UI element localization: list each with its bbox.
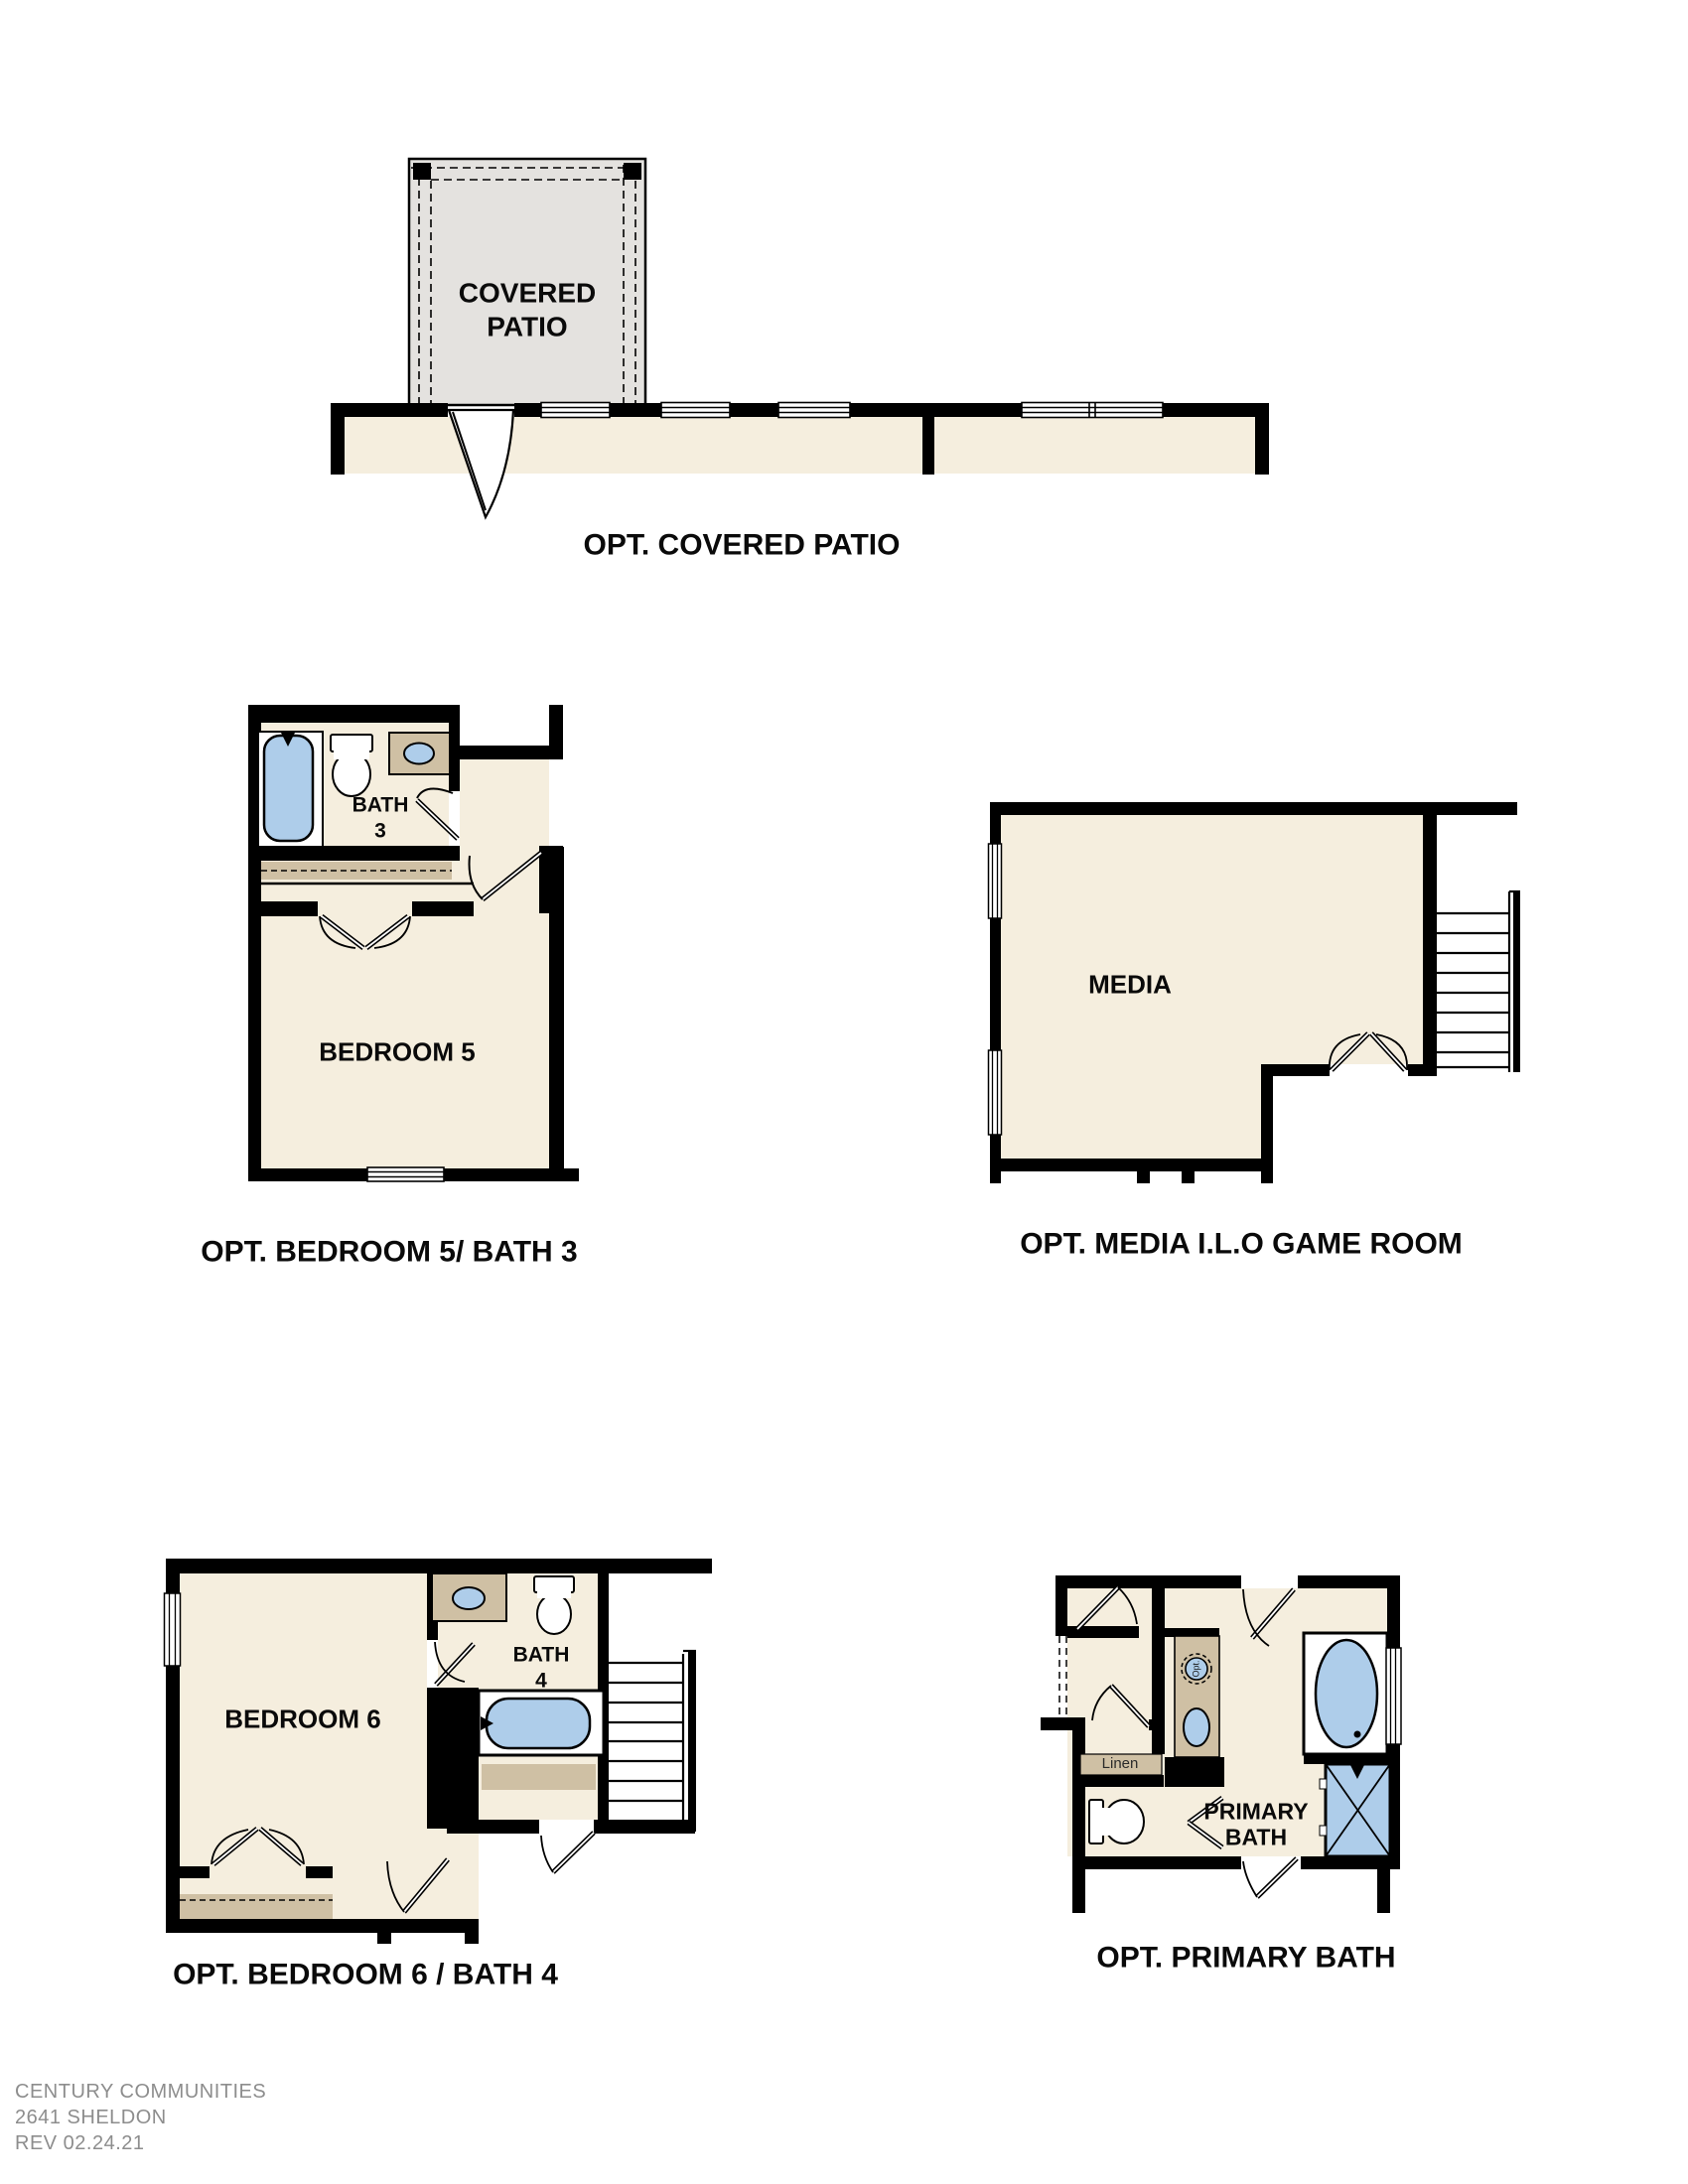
caption-media: OPT. MEDIA I.L.O GAME ROOM <box>1020 1226 1463 1261</box>
window <box>367 1167 444 1181</box>
bedroom6-bath4-plan <box>165 1559 713 1944</box>
vanity-sink <box>389 733 450 774</box>
vanity-sink <box>1175 1636 1219 1757</box>
room-label-primary-bath: PRIMARY BATH <box>1203 1799 1308 1851</box>
toilet <box>1089 1800 1144 1843</box>
room-label-bedroom5: BEDROOM 5 <box>319 1037 475 1068</box>
floorplan-page: COVERED PATIO OPT. COVERED PATIO BATH 3 … <box>0 0 1688 2184</box>
caption-bedroom5-bath3: OPT. BEDROOM 5/ BATH 3 <box>201 1234 577 1269</box>
label-opt-sink: Opt. <box>1192 1660 1202 1677</box>
toilet <box>331 735 372 796</box>
room-label-bath4: BATH 4 <box>513 1642 570 1693</box>
plan-number: 2641 SHELDON <box>15 2105 266 2130</box>
floorplan-drawing <box>0 0 1688 2184</box>
builder-name: CENTURY COMMUNITIES <box>15 2079 266 2105</box>
primary-bath-plan <box>1041 1575 1401 1913</box>
staircase <box>609 1651 696 1832</box>
title-block: CENTURY COMMUNITIES 2641 SHELDON REV 02.… <box>15 2079 266 2156</box>
caption-bedroom6-bath4: OPT. BEDROOM 6 / BATH 4 <box>173 1957 558 1991</box>
caption-primary-bath: OPT. PRIMARY BATH <box>1096 1940 1395 1975</box>
revision-date: REV 02.24.21 <box>15 2130 266 2156</box>
caption-covered-patio: OPT. COVERED PATIO <box>584 527 901 562</box>
room-label-media: MEDIA <box>1088 970 1172 1001</box>
room-label-bedroom6: BEDROOM 6 <box>224 1705 380 1735</box>
shower <box>1320 1764 1390 1856</box>
staircase <box>1437 891 1520 1072</box>
toilet <box>534 1576 574 1634</box>
closet-shelf <box>180 1894 333 1919</box>
vanity-sink <box>432 1573 506 1621</box>
bedroom5-bath3-plan <box>248 705 579 1181</box>
bath-counter <box>482 1764 596 1790</box>
room-label-covered-patio: COVERED PATIO <box>459 276 596 342</box>
patio-post <box>624 163 641 180</box>
patio-post <box>413 163 431 180</box>
room-label-bath3: BATH 3 <box>352 792 409 843</box>
bathtub <box>258 732 323 847</box>
bathtub <box>479 1691 604 1755</box>
media-plan <box>989 802 1521 1183</box>
garden-tub <box>1304 1633 1387 1754</box>
window <box>1386 1648 1401 1744</box>
window <box>165 1593 181 1666</box>
label-linen: Linen <box>1102 1755 1139 1773</box>
